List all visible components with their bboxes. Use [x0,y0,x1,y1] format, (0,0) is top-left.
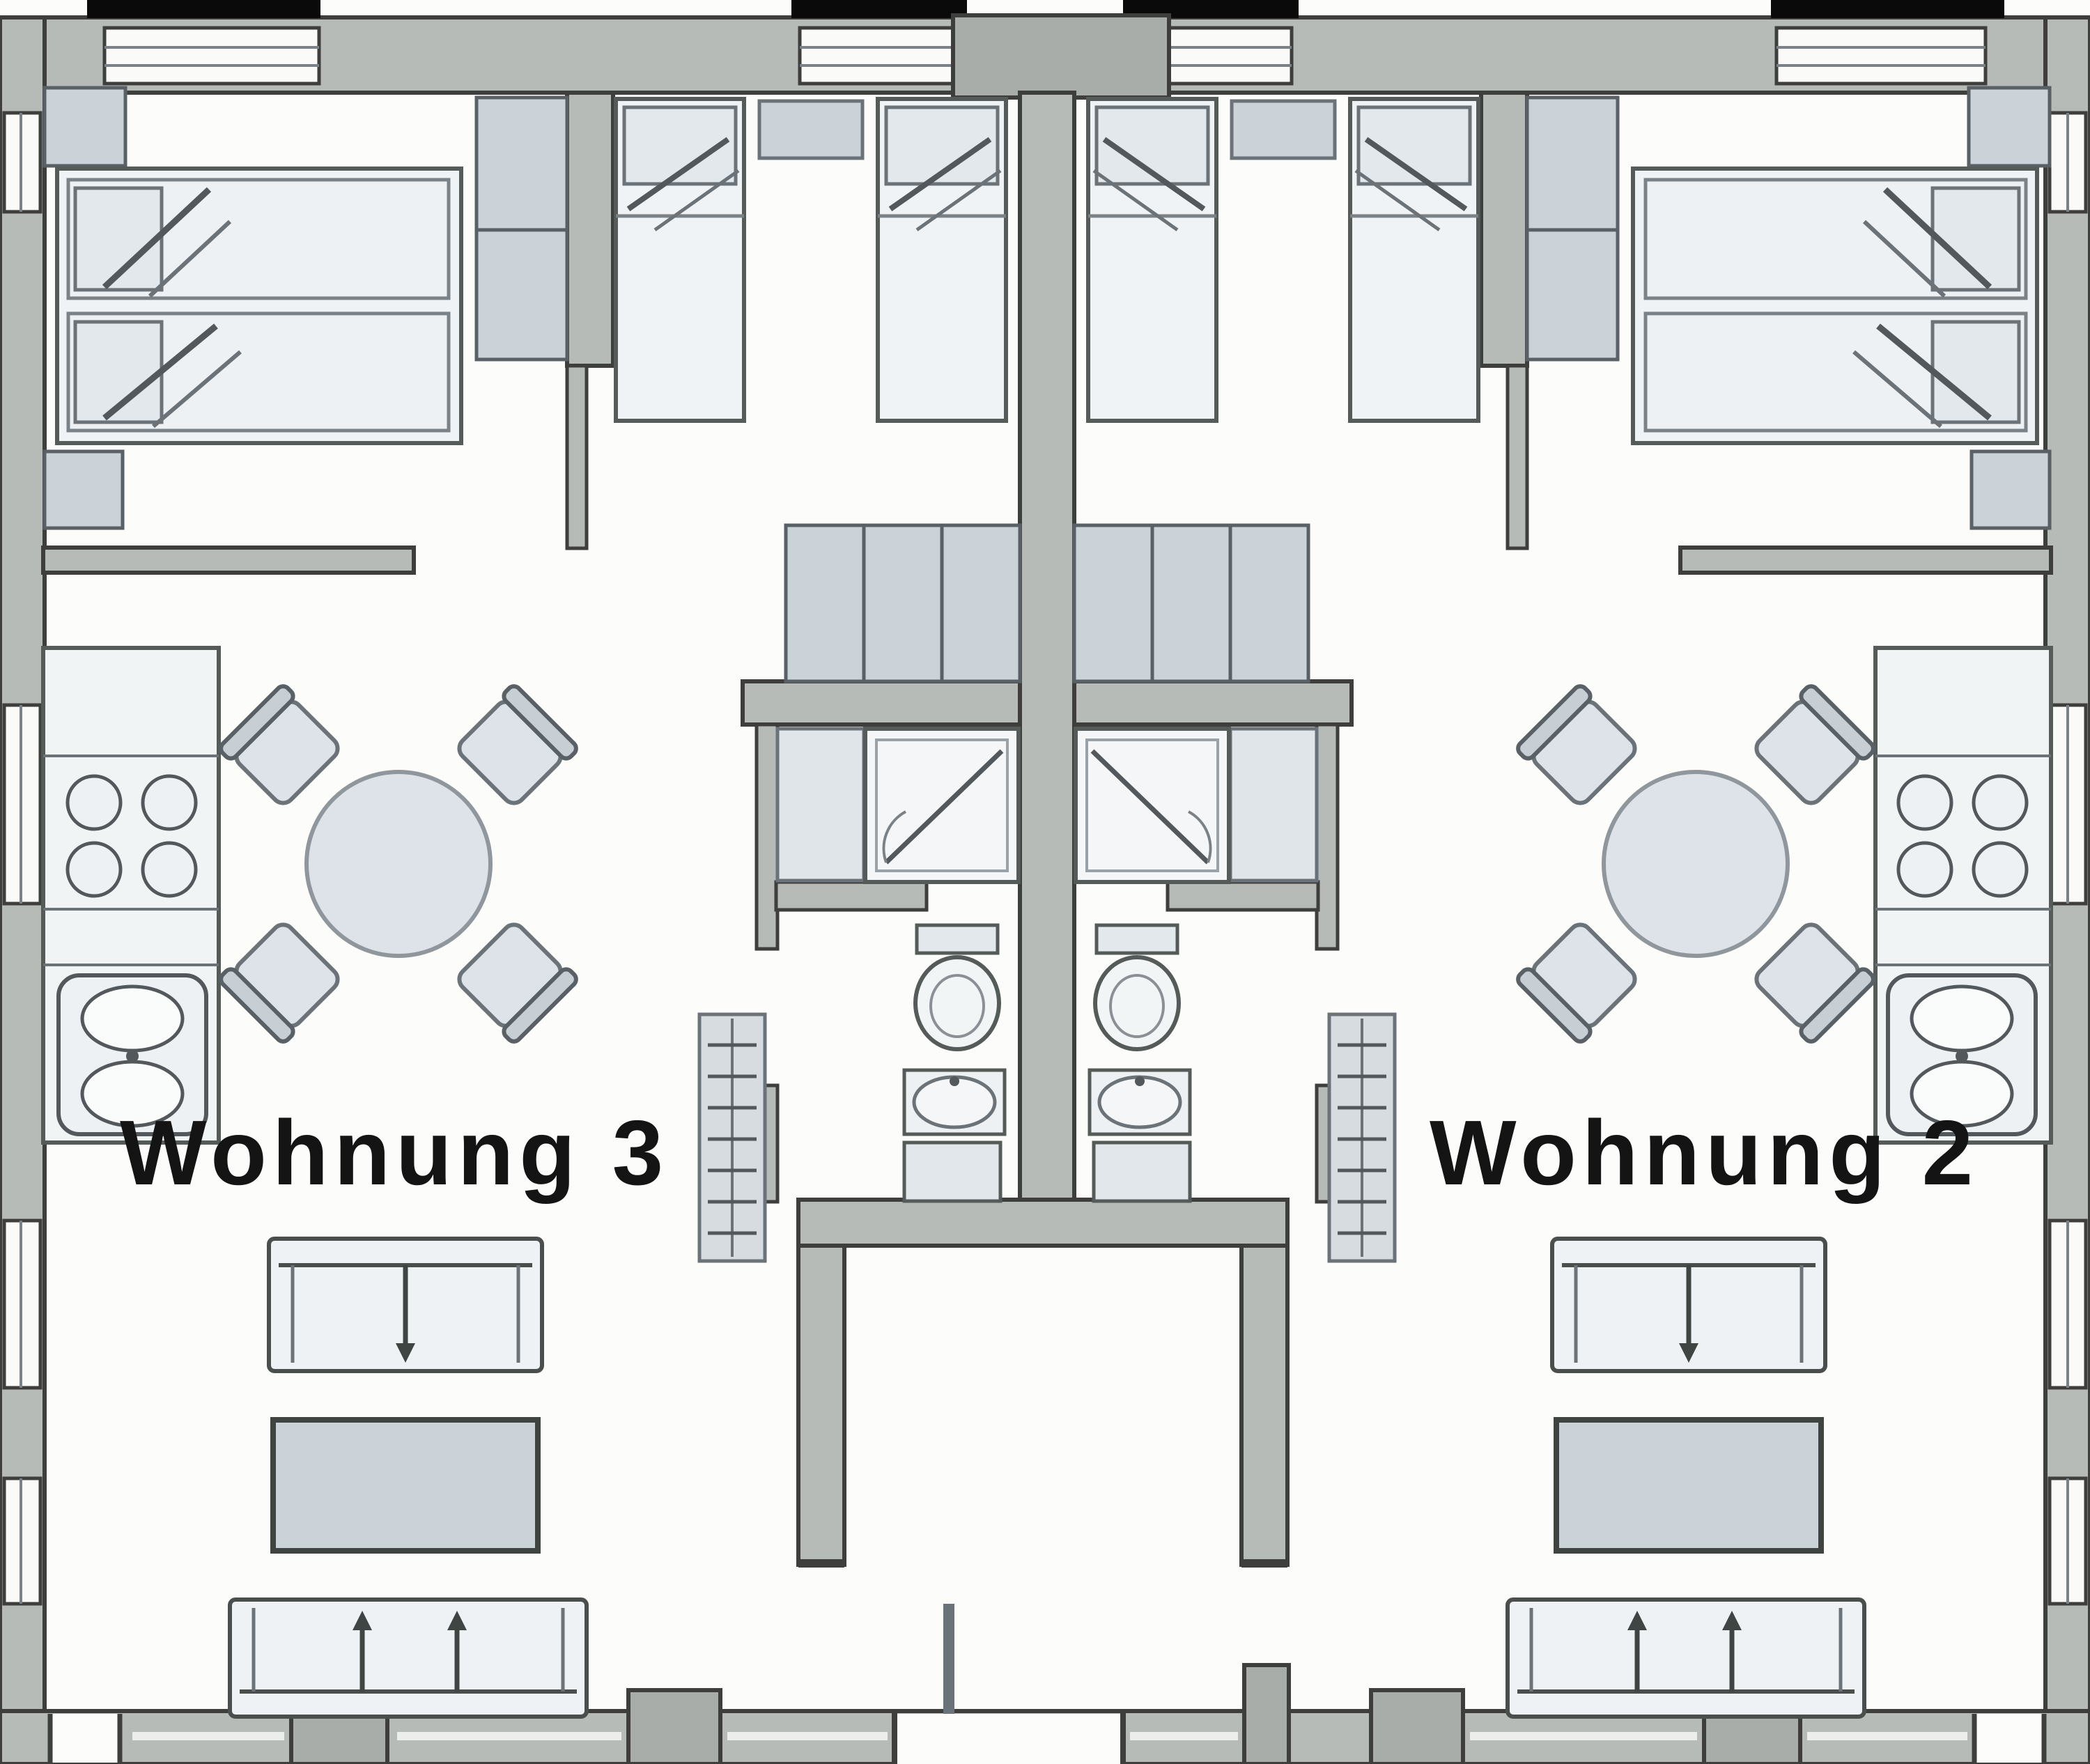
hall-wall-left [798,1246,844,1565]
wall-end-cap [798,1559,844,1568]
bottom-window-glazing [397,1732,621,1740]
floor-plan-page: Wohnung 3 Wohnung 2 [0,0,2090,1764]
wall-pier [1371,1690,1463,1764]
top-edge-black-strip [791,0,967,18]
bottom-window-glazing [1130,1732,1238,1740]
window [104,28,319,84]
window [2050,113,2086,212]
top-edge-black-strip [1771,0,2004,18]
window [1776,28,1985,84]
wall-end-cap [1241,1559,1287,1568]
window [4,1478,40,1604]
entrance-opening [895,1714,1123,1764]
wall-pier [628,1690,720,1764]
floor-plan-drawing: Wohnung 3 Wohnung 2 [0,0,2090,1764]
window [2050,1221,2086,1388]
bottom-window-glazing [727,1732,888,1740]
window [4,705,40,904]
window [4,113,40,212]
bottom-window-glazing [132,1732,284,1740]
apartment-label-right: Wohnung 2 [1430,1101,1979,1204]
apartment-label-left: Wohnung 3 [120,1101,669,1204]
hall-wall-horizontal [798,1200,1287,1246]
entrance-door-leaf [943,1604,954,1714]
window [4,1221,40,1388]
window [2050,705,2086,904]
top-edge-black-strip [87,0,320,18]
wall-pier [1244,1665,1289,1764]
party-wall [1020,93,1074,1202]
bottom-window-glazing [1807,1732,1967,1740]
top-wall-center-block [953,15,1169,98]
bottom-window-glazing [1470,1732,1697,1740]
window [2050,1478,2086,1604]
hall-wall-right [1241,1246,1287,1565]
window [800,28,961,84]
bottom-wall-opening [1974,1714,2044,1763]
bottom-wall-opening [50,1714,120,1763]
